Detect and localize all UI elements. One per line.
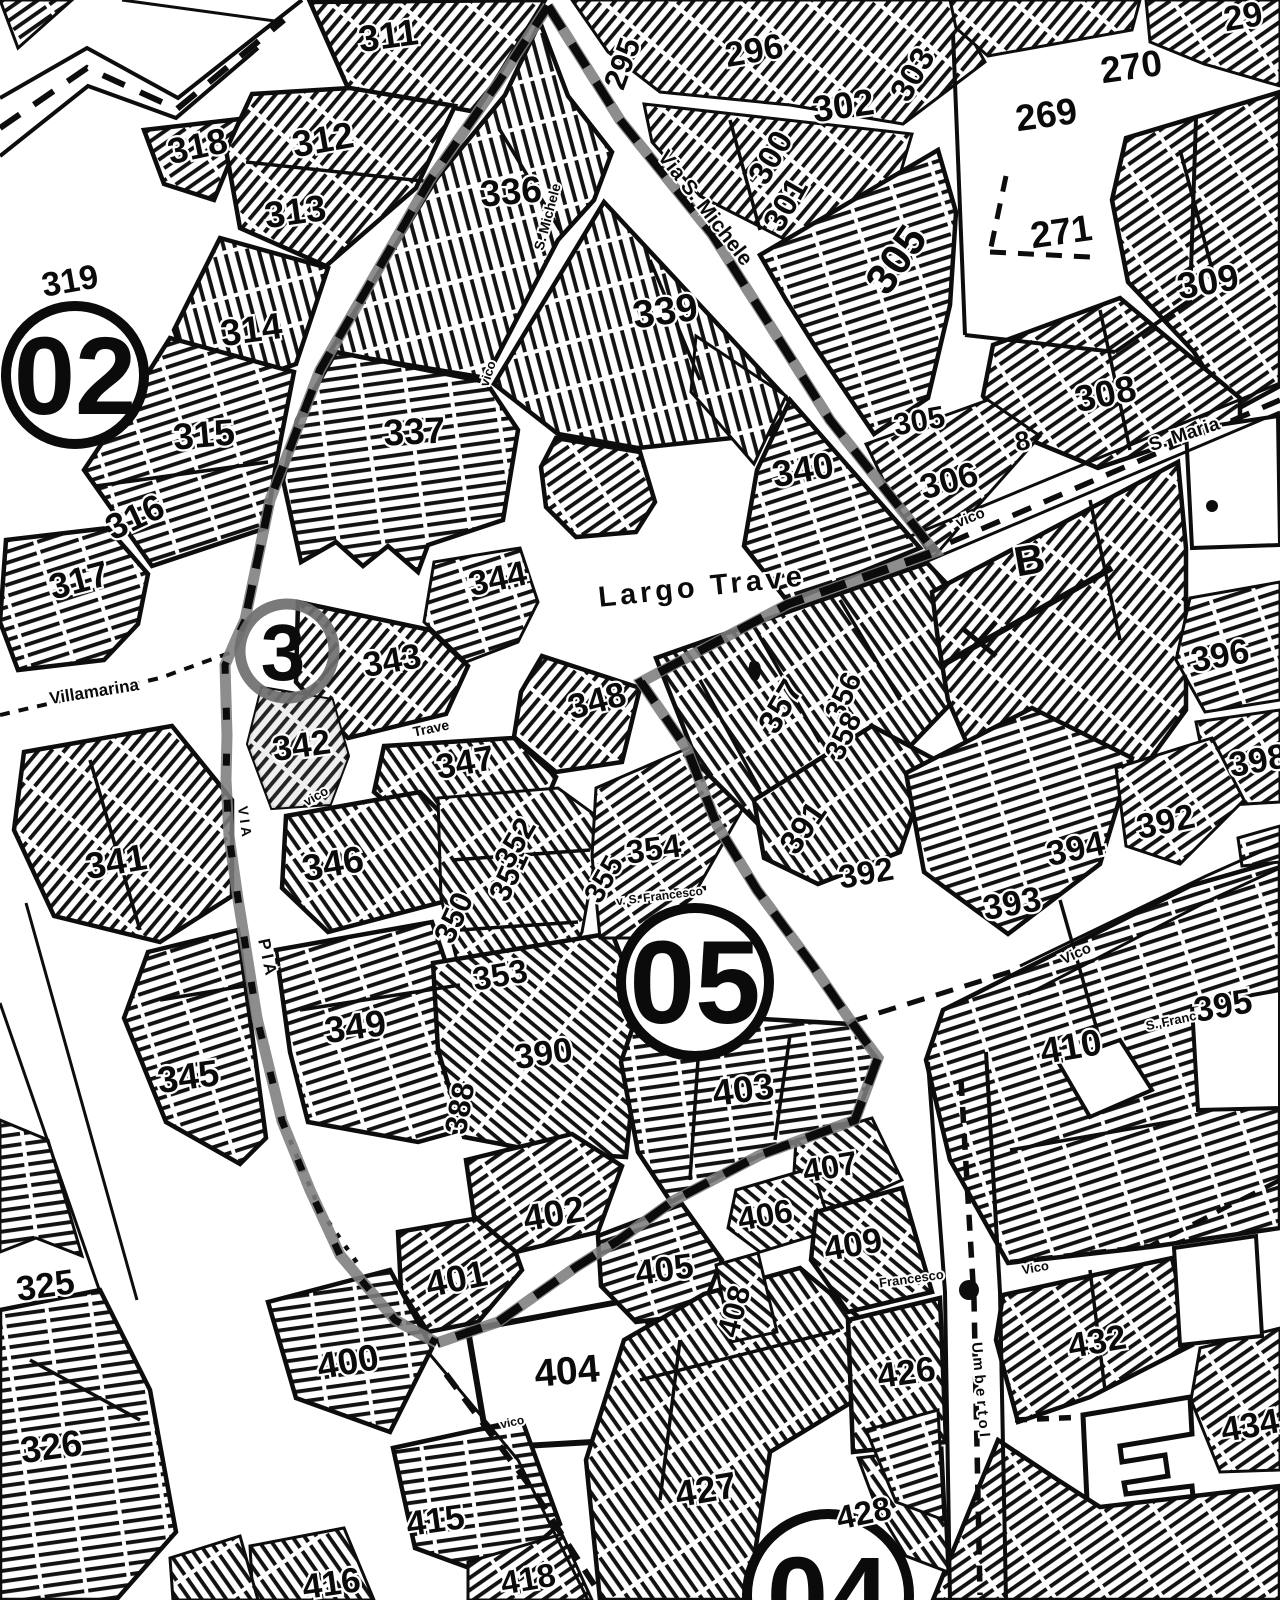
svg-text:345: 345 xyxy=(155,1052,222,1101)
svg-text:342: 342 xyxy=(270,722,333,769)
svg-text:426: 426 xyxy=(875,1349,938,1396)
svg-text:403: 403 xyxy=(710,1065,777,1114)
svg-text:405: 405 xyxy=(633,1246,696,1293)
svg-text:311: 311 xyxy=(356,11,421,60)
svg-text:416: 416 xyxy=(300,1560,363,1600)
svg-text:270: 270 xyxy=(1098,42,1165,91)
svg-text:336: 336 xyxy=(478,168,543,214)
svg-text:325: 325 xyxy=(14,1262,77,1309)
svg-text:05: 05 xyxy=(629,917,760,1049)
svg-text:29: 29 xyxy=(1220,0,1265,39)
svg-text:354: 354 xyxy=(624,826,684,870)
svg-text:415: 415 xyxy=(404,1497,467,1544)
svg-text:3: 3 xyxy=(261,608,306,697)
svg-text:349: 349 xyxy=(322,1002,389,1051)
svg-text:269: 269 xyxy=(1013,90,1080,139)
svg-text:339: 339 xyxy=(630,286,700,338)
svg-text:390: 390 xyxy=(512,1030,575,1077)
svg-text:271: 271 xyxy=(1028,207,1095,256)
svg-text:314: 314 xyxy=(218,305,285,354)
svg-text:313: 313 xyxy=(262,187,329,236)
svg-text:02: 02 xyxy=(14,315,136,438)
svg-text:302: 302 xyxy=(810,81,877,130)
svg-text:326: 326 xyxy=(18,1422,85,1471)
svg-text:315: 315 xyxy=(171,411,236,457)
svg-text:404: 404 xyxy=(533,1347,602,1396)
svg-text:04: 04 xyxy=(767,1535,889,1600)
svg-text:337: 337 xyxy=(382,409,446,453)
